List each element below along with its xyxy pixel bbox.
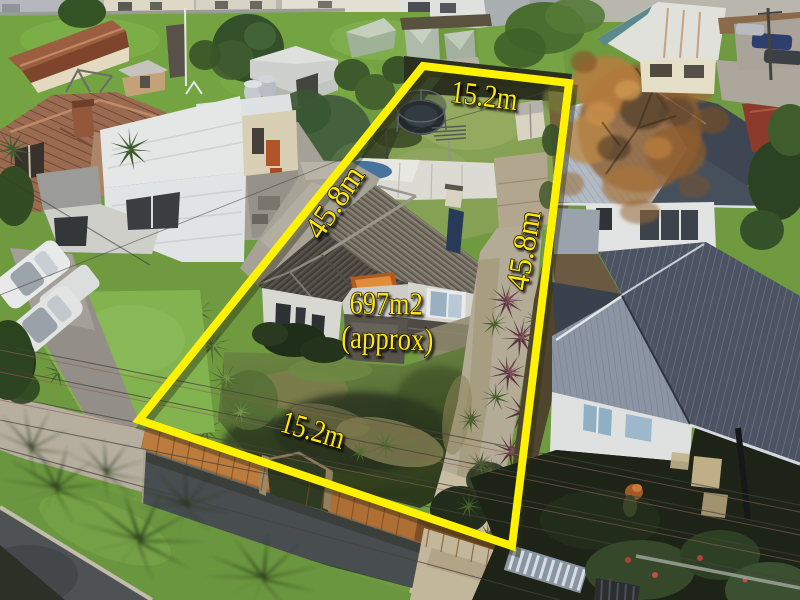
svg-text:(approx): (approx) [341, 318, 434, 357]
svg-text:697m2: 697m2 [349, 284, 423, 321]
